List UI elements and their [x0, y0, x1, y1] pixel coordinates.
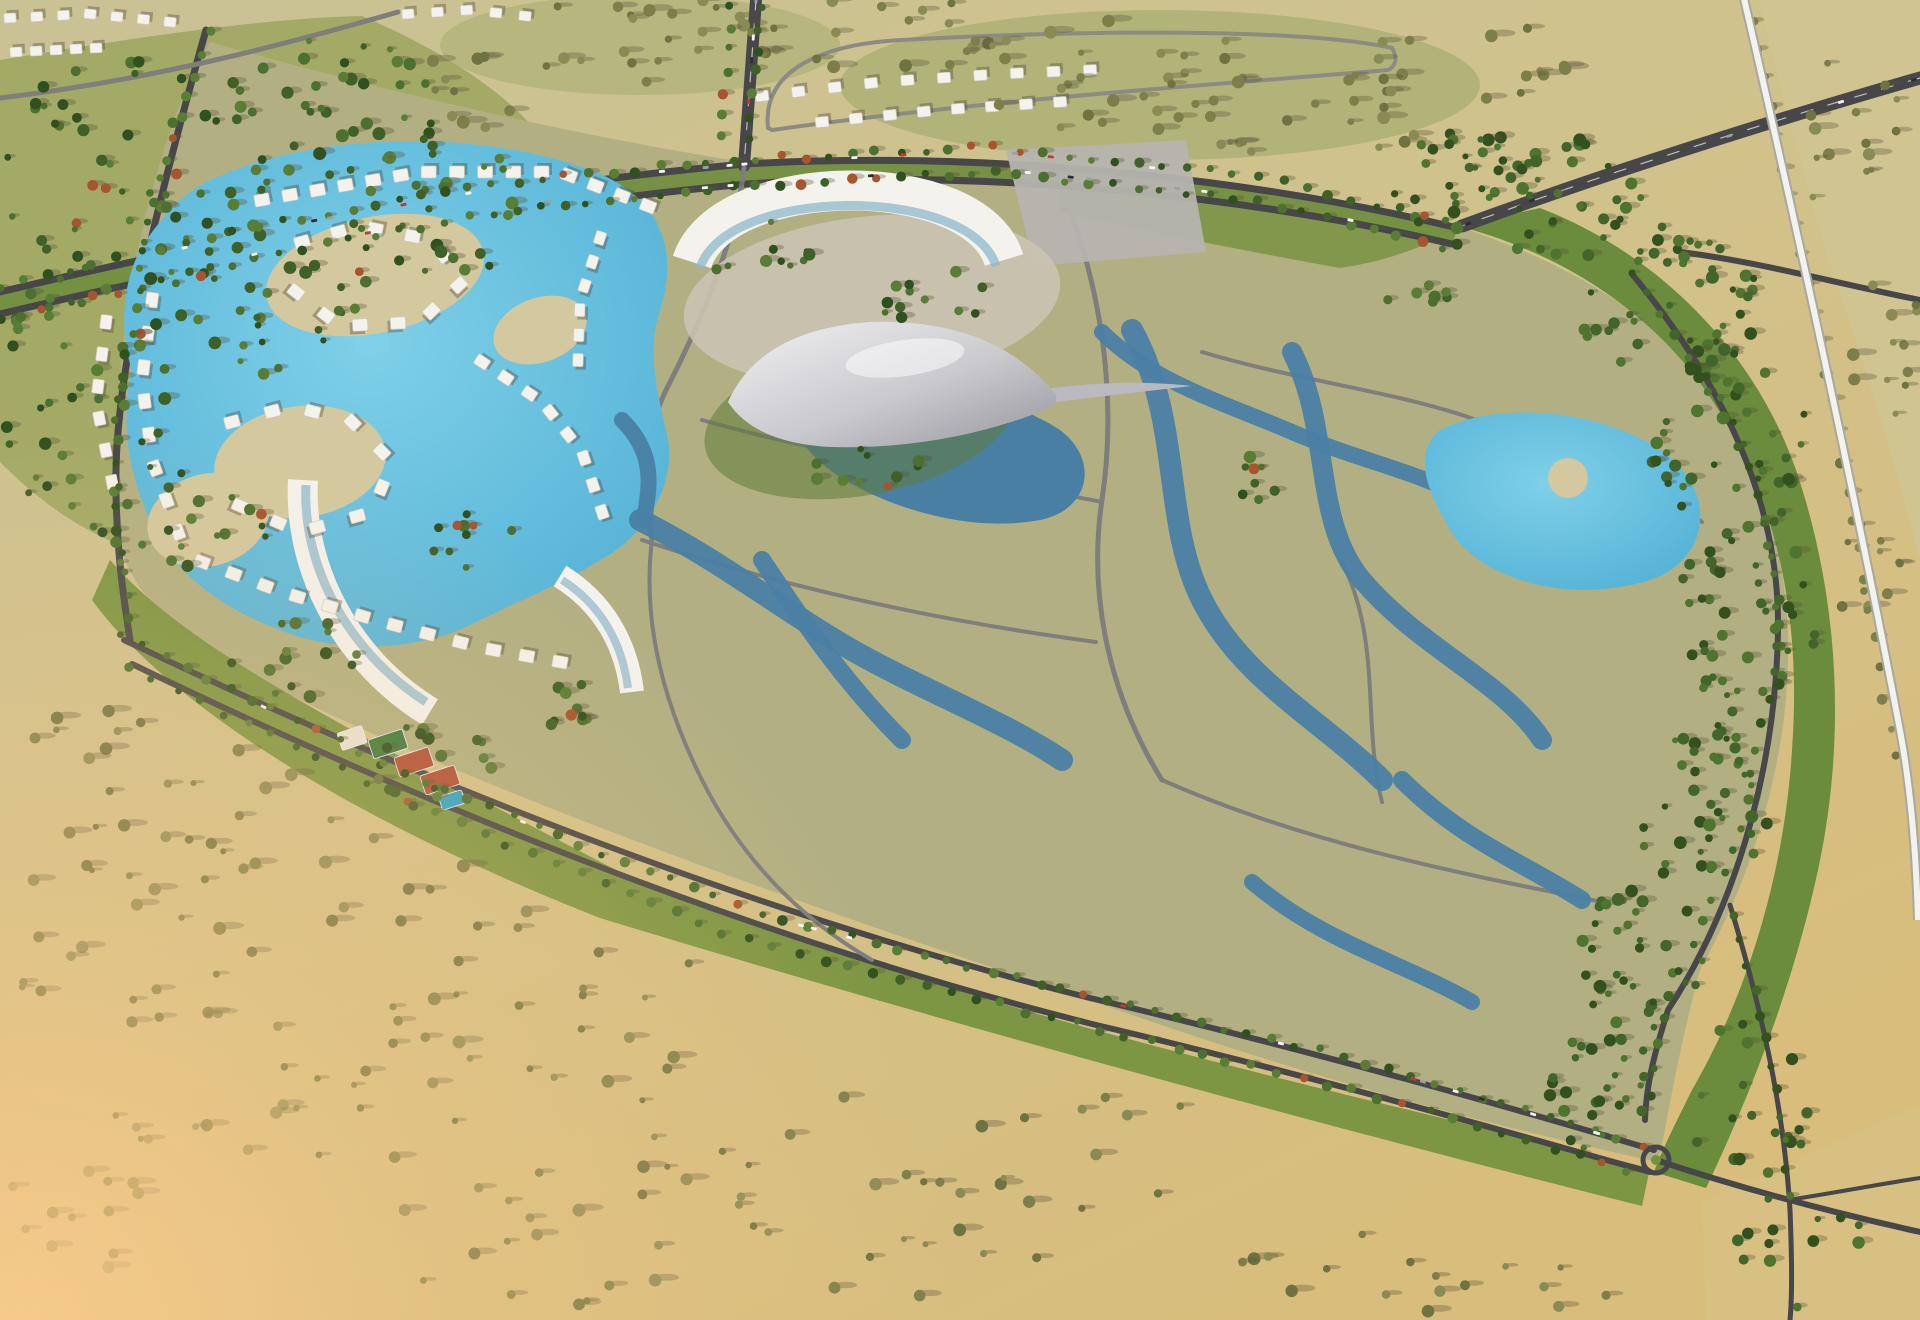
tree	[1731, 733, 1740, 742]
tree	[1781, 1165, 1790, 1174]
tree	[1557, 1264, 1563, 1270]
car-body	[546, 200, 552, 203]
tree	[515, 179, 524, 188]
tree	[239, 341, 247, 349]
tree	[1598, 213, 1609, 224]
tree	[1209, 95, 1219, 105]
tree	[325, 170, 334, 179]
tree	[1890, 339, 1897, 346]
tree	[1763, 541, 1772, 550]
tree	[1770, 570, 1777, 577]
tree	[1845, 539, 1852, 546]
tree	[1625, 177, 1637, 189]
tree	[1729, 742, 1740, 753]
tree	[1742, 963, 1749, 970]
tree	[1588, 289, 1594, 295]
tree	[1536, 245, 1545, 254]
tree	[1434, 1285, 1445, 1296]
tree	[370, 201, 380, 211]
villa-body	[164, 17, 177, 28]
tree	[1761, 1032, 1771, 1042]
tree	[170, 212, 181, 223]
tree	[775, 181, 785, 191]
tree	[1242, 1029, 1251, 1038]
tree	[1815, 1216, 1821, 1222]
car	[900, 153, 906, 156]
tree	[1612, 195, 1621, 204]
villa-body	[402, 9, 415, 19]
tree	[1764, 1239, 1773, 1248]
tree	[1649, 998, 1656, 1005]
tree	[1038, 172, 1049, 183]
tree	[507, 526, 516, 535]
tree	[1723, 377, 1733, 387]
tree	[1801, 1107, 1812, 1118]
tree	[1660, 429, 1668, 437]
villa-body	[110, 11, 123, 22]
tree	[1521, 70, 1532, 81]
tree	[996, 998, 1005, 1007]
car	[659, 170, 665, 173]
tree	[1649, 248, 1660, 259]
car	[741, 162, 747, 165]
tree	[747, 88, 757, 98]
tree	[702, 160, 709, 167]
tree	[421, 79, 430, 88]
tree	[1730, 350, 1738, 358]
tree	[144, 272, 157, 285]
tree	[361, 117, 373, 129]
tree	[1750, 275, 1757, 282]
tree	[1743, 292, 1753, 302]
car-body	[868, 174, 874, 177]
tree	[1582, 331, 1592, 341]
tree	[157, 246, 166, 255]
tree	[37, 305, 45, 313]
tree	[754, 26, 762, 34]
tree	[1522, 1136, 1530, 1144]
tree	[725, 44, 732, 51]
tree	[1860, 587, 1868, 595]
tree	[479, 52, 489, 62]
tree	[877, 2, 886, 11]
car-body	[750, 57, 753, 63]
tree	[1613, 927, 1621, 935]
tree	[237, 358, 243, 364]
tree	[1411, 288, 1422, 299]
car-body	[726, 164, 732, 167]
tree	[338, 72, 348, 82]
tree	[1677, 733, 1689, 745]
tree	[1478, 147, 1488, 157]
tree	[1061, 179, 1068, 186]
tree	[4, 154, 11, 161]
car-body	[900, 153, 906, 156]
tree	[1763, 1167, 1774, 1178]
villa-body	[937, 72, 951, 83]
tree	[1679, 483, 1687, 491]
tree	[1852, 1236, 1864, 1248]
tree	[1751, 747, 1759, 755]
tree	[1102, 995, 1112, 1005]
tree	[665, 36, 672, 43]
tree	[1462, 153, 1468, 159]
villa-body	[30, 46, 42, 56]
tree	[1806, 110, 1817, 121]
villa-body	[534, 166, 549, 178]
tree	[1690, 767, 1700, 777]
tree	[232, 242, 244, 254]
tree	[232, 114, 242, 124]
tree	[1742, 651, 1754, 663]
tree	[1733, 1153, 1746, 1166]
tree	[1786, 1192, 1794, 1200]
tree	[1539, 1282, 1548, 1291]
tree	[1289, 1043, 1297, 1051]
tree	[185, 267, 194, 276]
tree	[281, 86, 293, 98]
tree	[918, 6, 927, 15]
tree	[372, 233, 379, 240]
tree	[1735, 757, 1744, 766]
tree	[1712, 329, 1722, 339]
tree	[193, 315, 203, 325]
tree	[1258, 464, 1265, 471]
villa-body	[390, 317, 406, 330]
tree	[967, 141, 975, 149]
tree	[45, 303, 54, 312]
tree	[1497, 1099, 1505, 1107]
tree	[1656, 310, 1664, 318]
tree	[1378, 37, 1388, 47]
tree	[211, 275, 218, 282]
tree	[1238, 490, 1248, 500]
tree	[945, 19, 953, 27]
tree	[1066, 155, 1072, 161]
tree	[348, 126, 359, 137]
tree	[1666, 302, 1673, 309]
tree	[67, 393, 77, 403]
tree	[831, 27, 841, 37]
tree	[1551, 1145, 1560, 1154]
tree	[1020, 1008, 1030, 1018]
villa-body	[137, 14, 150, 25]
tree	[1406, 1258, 1415, 1267]
tree	[1154, 1189, 1162, 1197]
tree	[114, 395, 122, 403]
tree	[228, 262, 236, 270]
tree	[366, 186, 376, 196]
villa-body	[337, 178, 354, 192]
tree	[1730, 286, 1736, 292]
tree	[1549, 217, 1557, 225]
tree	[1880, 80, 1890, 90]
tree	[1422, 1305, 1435, 1318]
villa-body	[70, 44, 82, 54]
roundabout-island	[1651, 1155, 1661, 1165]
tree	[1079, 990, 1087, 998]
tree	[96, 155, 107, 166]
tree	[337, 283, 345, 291]
tree	[1619, 976, 1628, 985]
tree	[1323, 1265, 1331, 1273]
tree	[1078, 1205, 1085, 1212]
tree	[1868, 280, 1878, 290]
tree	[1559, 62, 1572, 75]
tree	[1736, 936, 1743, 943]
tree	[392, 56, 404, 68]
tree	[111, 251, 121, 261]
tree	[768, 219, 774, 225]
tree	[463, 182, 472, 191]
tree	[1786, 1053, 1798, 1065]
tree	[358, 225, 365, 232]
tree	[57, 275, 64, 282]
car	[702, 186, 708, 189]
tree	[122, 129, 133, 140]
tree	[1663, 258, 1672, 267]
tree	[891, 471, 902, 482]
tree	[1347, 118, 1354, 125]
tree	[1158, 163, 1165, 170]
tree	[1405, 36, 1414, 45]
tree	[971, 309, 980, 318]
tree	[1377, 111, 1390, 124]
tree	[943, 957, 951, 965]
tree	[1682, 980, 1688, 986]
tree	[1011, 169, 1021, 179]
villa-body	[974, 70, 988, 81]
tree	[349, 206, 358, 215]
tree	[1594, 980, 1607, 993]
tree	[746, 136, 753, 143]
tree	[1102, 15, 1115, 28]
tree	[1396, 203, 1405, 212]
tree	[1577, 1042, 1586, 1051]
tree	[334, 306, 344, 316]
car-body	[741, 162, 747, 165]
tree	[1481, 93, 1492, 104]
tree	[945, 60, 955, 70]
tree	[1277, 204, 1287, 214]
tree	[1753, 490, 1762, 499]
tree	[744, 113, 753, 122]
tree	[1740, 441, 1747, 448]
tree	[1228, 170, 1235, 177]
tree	[245, 282, 256, 293]
tree	[1739, 1081, 1747, 1089]
tree	[206, 263, 214, 271]
tree	[943, 145, 953, 155]
tree	[1892, 751, 1900, 759]
tree	[1604, 1034, 1616, 1046]
tree	[1685, 599, 1693, 607]
tree	[372, 127, 385, 140]
tree	[812, 54, 821, 63]
tree	[1374, 54, 1384, 64]
tree	[999, 53, 1011, 65]
tree	[1219, 53, 1230, 64]
tree	[1001, 36, 1011, 46]
tree	[717, 131, 726, 140]
tree	[948, 988, 956, 996]
tree	[1558, 1105, 1570, 1117]
tree	[248, 107, 257, 116]
tree	[1270, 486, 1280, 496]
tree	[820, 178, 829, 187]
tree	[236, 306, 245, 315]
tree	[1698, 916, 1708, 926]
tree	[1493, 165, 1503, 175]
tree	[309, 260, 320, 271]
tree	[136, 265, 143, 272]
villa-body	[901, 75, 915, 86]
tree	[1253, 195, 1262, 204]
tree	[1677, 502, 1686, 511]
tree	[504, 105, 515, 116]
car	[546, 200, 552, 203]
tree	[1322, 190, 1333, 201]
villa-body	[138, 393, 152, 409]
tree	[1221, 37, 1229, 45]
tree	[770, 24, 778, 32]
tree	[1809, 122, 1822, 135]
tree	[1742, 1037, 1753, 1048]
tree	[72, 251, 83, 262]
tree	[899, 59, 912, 72]
tree	[1057, 123, 1065, 131]
tree	[279, 216, 286, 223]
tree	[896, 171, 906, 181]
tree	[1706, 271, 1719, 284]
tree	[162, 191, 170, 199]
tree	[1706, 800, 1715, 809]
tree	[1756, 598, 1766, 608]
tree	[891, 280, 902, 291]
tree	[1517, 89, 1525, 97]
tree	[1339, 1053, 1348, 1062]
tree	[1191, 100, 1199, 108]
tree	[51, 120, 59, 128]
tree	[1664, 480, 1671, 487]
tree	[1742, 521, 1754, 533]
tree	[311, 81, 321, 91]
tree	[1660, 940, 1672, 952]
tree	[323, 237, 332, 246]
tree	[1730, 911, 1739, 920]
tree	[1524, 159, 1533, 168]
tree	[1499, 156, 1508, 165]
tree	[1119, 1033, 1128, 1042]
tree	[345, 234, 352, 241]
tree	[963, 47, 971, 55]
tree	[913, 455, 925, 467]
tree	[1718, 343, 1731, 356]
tree	[1635, 943, 1644, 952]
tree	[1156, 49, 1165, 58]
tree	[1516, 182, 1529, 195]
tree	[1699, 683, 1708, 692]
tree	[290, 141, 299, 150]
tree	[1724, 692, 1730, 698]
tree	[1399, 136, 1411, 148]
tree	[1588, 945, 1596, 953]
tree	[1743, 794, 1753, 804]
tree	[1566, 1135, 1576, 1145]
tree	[1151, 1007, 1158, 1014]
tree	[631, 196, 637, 202]
tree	[994, 99, 1005, 110]
tree	[802, 155, 811, 164]
tree	[1074, 1018, 1081, 1025]
car-body	[754, 0, 757, 4]
tree	[1912, 301, 1920, 309]
tree	[1612, 1072, 1618, 1078]
tree	[1695, 279, 1704, 288]
tree	[1183, 163, 1191, 171]
tree	[554, 2, 562, 10]
tree	[711, 264, 721, 274]
tree	[200, 110, 212, 122]
tree	[1421, 159, 1430, 168]
tree	[1592, 920, 1599, 927]
tree	[1717, 630, 1728, 641]
tree	[606, 197, 614, 205]
tree	[1729, 846, 1737, 854]
tree	[1346, 196, 1355, 205]
tree	[1728, 1114, 1736, 1122]
tree	[156, 174, 163, 181]
tree	[1794, 1125, 1803, 1134]
villa-body	[10, 47, 22, 57]
tree	[1877, 694, 1888, 705]
tree	[727, 24, 736, 33]
tree	[161, 202, 172, 213]
tree	[1486, 194, 1493, 201]
car	[750, 57, 753, 63]
tree	[1752, 986, 1762, 996]
villa-body	[1047, 66, 1060, 77]
tree	[1001, 1175, 1007, 1181]
tree	[255, 322, 262, 329]
tree	[1148, 1036, 1156, 1044]
masterplan-aerial-render	[0, 0, 1920, 1320]
tree	[425, 205, 432, 212]
tree	[1561, 142, 1571, 152]
car-body	[703, 166, 709, 169]
tree	[202, 218, 213, 229]
tree	[1632, 908, 1640, 916]
tree	[1581, 970, 1591, 980]
tree	[667, 8, 677, 18]
tree	[101, 183, 111, 193]
tree	[1430, 1080, 1438, 1088]
tree	[1083, 109, 1094, 120]
tree	[796, 179, 807, 190]
tree	[1628, 269, 1635, 276]
tree	[1651, 437, 1664, 450]
tree	[1153, 123, 1165, 135]
car	[747, 98, 750, 104]
tree	[1247, 147, 1256, 156]
tree	[1427, 1107, 1434, 1114]
tree	[1810, 630, 1819, 639]
villa-body	[431, 7, 444, 17]
tree	[968, 171, 975, 178]
tree	[1719, 607, 1731, 619]
tree	[1691, 405, 1704, 418]
tree	[1090, 1149, 1102, 1161]
